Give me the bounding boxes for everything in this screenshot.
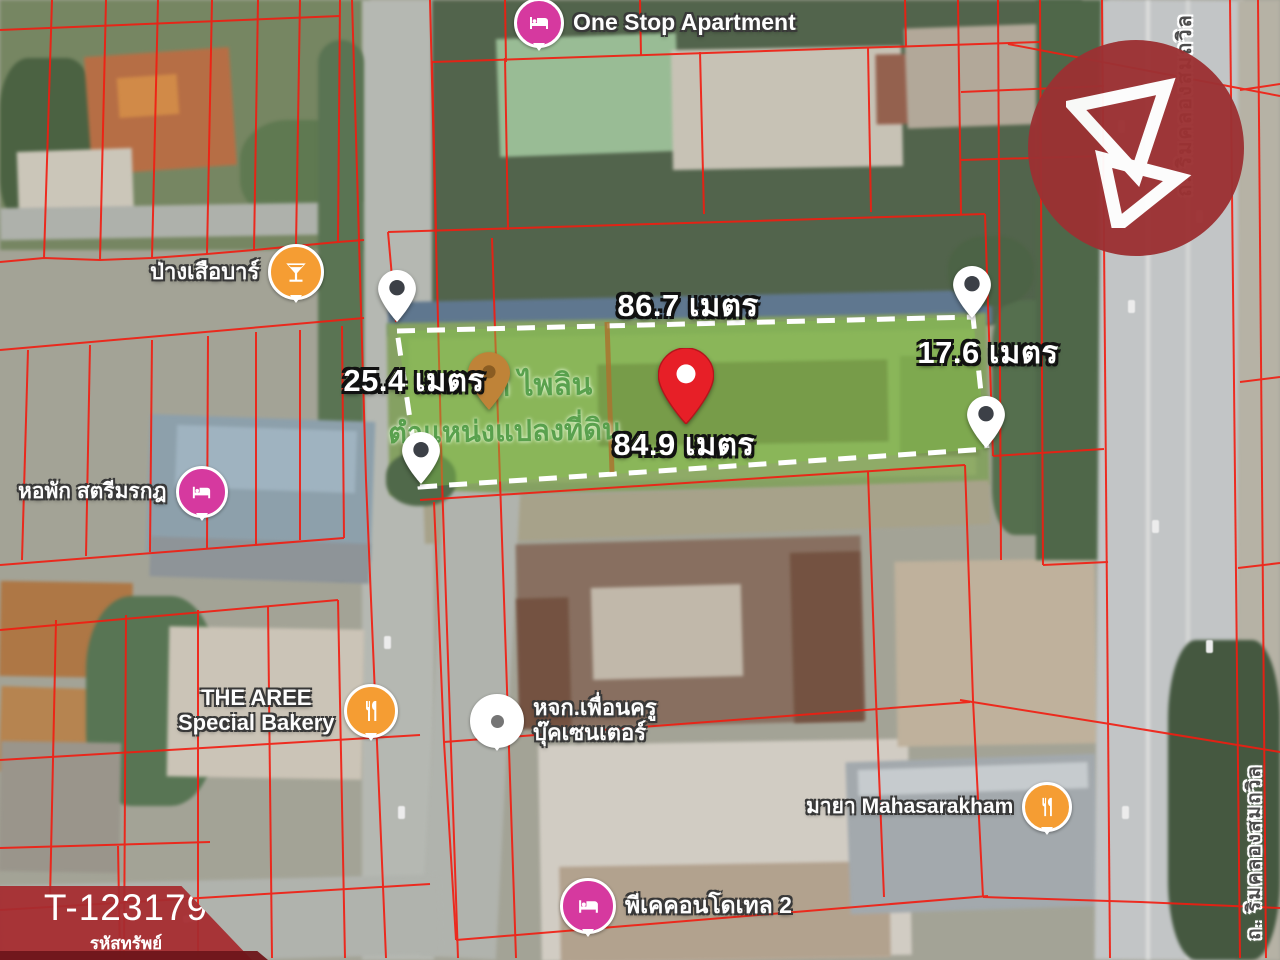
dimension-bottom: 84.9 เมตร (613, 419, 754, 469)
poi-label: พีเคคอนโดเทล 2 (625, 893, 792, 919)
dimension-top: 86.7 เมตร (617, 280, 758, 330)
bed-icon (514, 0, 564, 48)
poi-the-aree-bakery: THE AREE Special Bakery (178, 684, 398, 738)
property-listing-map: ก ไพลิน ตำแหน่งแปลงที่ดิน One Stop Apart… (0, 0, 1280, 960)
bed-icon (560, 878, 616, 934)
road-label-rim-khlong: ถ. ริมคลองสมถวิล (1239, 764, 1269, 940)
target-location-pin (658, 348, 714, 429)
poi-maya-mahasarakham: มายา Mahasarakham (806, 782, 1072, 832)
bar-icon (268, 244, 324, 300)
plot-corner-pin (967, 396, 1005, 453)
poi-hophak-satri-morakot: หอพัก สตรีมรกฎ (18, 466, 228, 518)
restaurant-icon (344, 684, 398, 738)
plot-corner-pin (953, 266, 991, 323)
poi-label: ป่างเสือบาร์ (150, 260, 259, 285)
poi-label: หอพัก สตรีมรกฎ (18, 480, 167, 504)
triangle-b-monogram-icon (1066, 68, 1206, 228)
poi-puen-khru-book-center: หจก.เพื่อนครู บุ๊คเซนเตอร์ (470, 694, 657, 748)
poi-pk-condotel-2: พีเคคอนโดเทล 2 (560, 878, 792, 934)
brand-logo (1028, 40, 1244, 256)
poi-label: THE AREE Special Bakery (178, 686, 335, 735)
poi-one-stop-apartment: One Stop Apartment (514, 0, 796, 48)
restaurant-icon (1022, 782, 1072, 832)
place-dot-icon (470, 694, 524, 748)
dimension-left: 25.4 เมตร (343, 355, 484, 405)
bed-icon (176, 466, 228, 518)
poi-label: มายา Mahasarakham (806, 795, 1013, 819)
banner-accent-strip (0, 951, 268, 960)
plot-corner-pin (378, 270, 416, 327)
poi-label: หจก.เพื่อนครู บุ๊คเซนเตอร์ (533, 696, 657, 745)
plot-corner-pin (402, 432, 440, 489)
dimension-right: 17.6 เมตร (917, 327, 1058, 377)
poi-pang-suea-bar: ป่างเสือบาร์ (150, 244, 324, 300)
property-code: T-123179 (44, 889, 208, 926)
poi-label: One Stop Apartment (573, 10, 796, 36)
